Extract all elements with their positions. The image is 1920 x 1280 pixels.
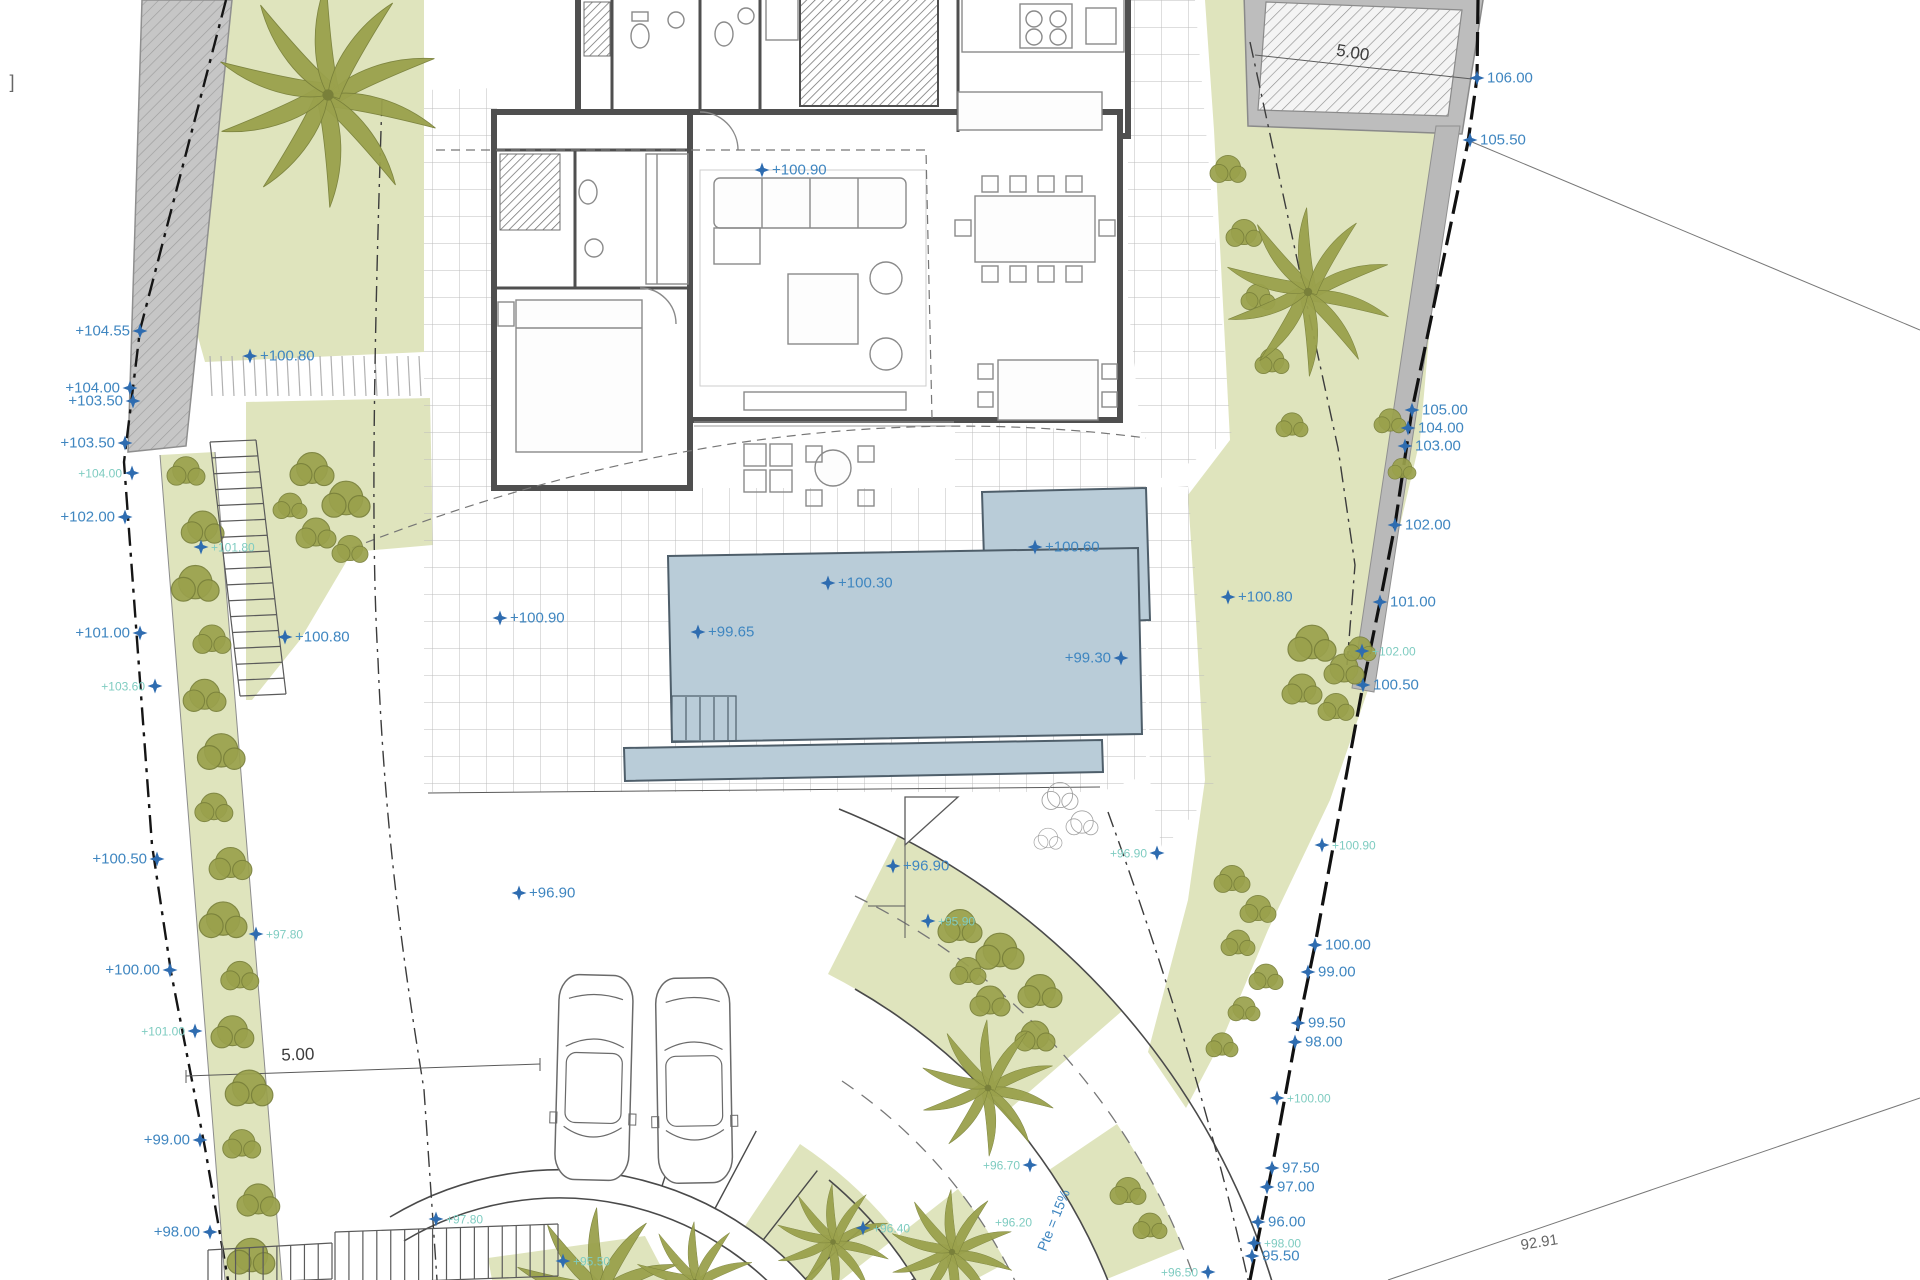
spot-elevation: +97.80	[249, 927, 304, 942]
spot-elevation-value: +96.90	[903, 858, 949, 875]
spot-elevation-value: +99.00	[144, 1132, 190, 1149]
spot-elevation-value: +96.40	[873, 1222, 910, 1236]
survey-diamond-icon	[1301, 965, 1316, 980]
spot-elevation: +96.40	[856, 1221, 911, 1236]
spot-elevation-value: +100.00	[105, 962, 160, 979]
spot-elevation-value: +96.20	[995, 1216, 1032, 1230]
spot-elevation-value: +98.00	[154, 1224, 200, 1241]
spot-elevation: +95.50	[556, 1254, 611, 1269]
spot-elevation-value: +100.80	[260, 348, 315, 365]
spot-elevation-value: +98.00	[1264, 1237, 1301, 1251]
spot-elevation-value: 106.00	[1487, 70, 1533, 87]
garden-top-left	[196, 0, 424, 362]
spot-elevation: +100.90	[1315, 838, 1377, 853]
spot-elevation-value: +103.50	[60, 435, 115, 452]
car-2	[649, 977, 739, 1183]
survey-diamond-icon	[203, 1225, 218, 1240]
spot-elevation-value: 96.00	[1268, 1214, 1306, 1231]
spot-elevation-value: +96.50	[1161, 1266, 1198, 1280]
pergola-stripes	[210, 356, 421, 396]
spot-elevation-value: 100.00	[1325, 937, 1371, 954]
dimension-label: Pte = 15%	[1034, 1187, 1073, 1253]
spot-elevation: +102.00	[60, 509, 132, 526]
spot-elevation: 98.00	[1288, 1034, 1343, 1051]
spot-elevation: +96.90	[512, 885, 576, 902]
spot-elevation: +98.00	[1247, 1236, 1302, 1251]
pergola-stripe	[342, 356, 344, 396]
pergola-stripe	[320, 356, 322, 396]
survey-diamond-icon	[1308, 938, 1323, 953]
survey-diamond-icon	[150, 852, 165, 867]
spot-elevation-value: +100.50	[92, 851, 147, 868]
survey-diamond-icon	[1315, 838, 1330, 853]
spot-elevation-value: +101.00	[141, 1025, 185, 1039]
spot-elevation-value: +100.80	[295, 629, 350, 646]
spot-elevation-value: 97.50	[1282, 1160, 1320, 1177]
spot-elevation-value: +99.30	[1065, 650, 1111, 667]
spot-elevation: +95.90	[921, 914, 976, 929]
spot-elevation-value: +100.60	[1045, 539, 1100, 556]
spot-elevation-value: +100.00	[1287, 1092, 1331, 1106]
survey-diamond-icon	[512, 886, 527, 901]
spot-elevation-value: +102.00	[1372, 645, 1416, 659]
spot-elevation-value: +101.80	[211, 541, 255, 555]
spot-elevation: +96.50	[1161, 1265, 1216, 1280]
survey-diamond-icon	[1260, 1180, 1275, 1195]
spot-elevation-value: 101.00	[1390, 594, 1436, 611]
villa	[494, 0, 1128, 488]
spot-elevation-value: +97.80	[266, 928, 303, 942]
spot-elevation: +103.60	[101, 679, 162, 694]
pergola-stripe	[408, 356, 410, 396]
spot-elevation-value: +100.90	[510, 610, 565, 627]
spot-elevation-value: 105.00	[1422, 402, 1468, 419]
spot-elevation-value: +100.90	[772, 162, 827, 179]
dimension-label: 5.00	[281, 1044, 315, 1064]
spot-elevation-value: +100.90	[1332, 839, 1376, 853]
dimension-label: 92.91	[1519, 1231, 1559, 1254]
spot-elevation: +99.00	[144, 1132, 208, 1149]
survey-diamond-icon	[188, 1024, 203, 1039]
spot-elevation-value: 99.00	[1318, 964, 1356, 981]
pergola-stripe	[386, 356, 388, 396]
spot-elevation-value: +104.55	[75, 323, 130, 340]
spot-elevation: +96.20	[995, 1216, 1032, 1230]
spot-elevation-value: +100.30	[838, 575, 893, 592]
spot-elevation: 100.00	[1308, 937, 1371, 954]
spot-elevation: +97.80	[429, 1212, 484, 1227]
spot-elevation-value: +96.70	[983, 1159, 1020, 1173]
drainage-triangle	[905, 797, 958, 845]
pergola-stripe	[254, 356, 256, 396]
site-plan-sheet: +100.90+100.80+100.80+100.90+100.60+100.…	[0, 0, 1920, 1280]
spot-elevation-value: 99.50	[1308, 1015, 1346, 1032]
spot-elevation: 105.50	[1463, 132, 1526, 149]
survey-diamond-icon	[1201, 1265, 1216, 1280]
survey-diamond-icon	[148, 679, 163, 694]
spot-elevation-value: +96.90	[529, 885, 575, 902]
pergola-stripe	[364, 356, 366, 396]
spot-elevation-value: +101.00	[75, 625, 130, 642]
pergola-stripe	[221, 356, 223, 396]
pergola-stripe	[397, 356, 399, 396]
spot-elevation: 97.00	[1260, 1179, 1315, 1196]
spot-elevation-value: 98.00	[1305, 1034, 1343, 1051]
spot-elevation-value: +104.00	[78, 467, 122, 481]
car-1	[548, 974, 639, 1181]
dry-shrub	[1066, 811, 1098, 835]
survey-diamond-icon	[1265, 1161, 1280, 1176]
survey-diamond-icon	[118, 510, 133, 525]
survey-diamond-icon	[429, 1212, 444, 1227]
survey-diamond-icon	[133, 626, 148, 641]
pergola-stripe	[210, 356, 212, 396]
spot-elevation: +104.00	[78, 466, 139, 481]
pergola-stripe	[353, 356, 355, 396]
dimension-label: ]	[9, 72, 14, 92]
spot-elevation-value: 103.00	[1415, 438, 1461, 455]
survey-diamond-icon	[163, 963, 178, 978]
spot-elevation-value: 105.50	[1480, 132, 1526, 149]
pergola-stripe	[331, 356, 333, 396]
pergola-stripe	[232, 356, 234, 396]
survey-diamond-icon	[1291, 1016, 1306, 1031]
spot-elevation-value: 97.00	[1277, 1179, 1315, 1196]
spot-elevation: +100.00	[1270, 1091, 1332, 1106]
spot-elevation-value: +103.60	[101, 680, 145, 694]
dry-shrub	[1034, 828, 1062, 849]
spot-elevation-value: +99.65	[708, 624, 754, 641]
spot-elevation-value: 100.50	[1373, 677, 1419, 694]
spot-elevation: +98.00	[154, 1224, 218, 1241]
spot-elevation-value: +100.80	[1238, 589, 1293, 606]
survey-diamond-icon	[1023, 1158, 1038, 1173]
survey-diamond-icon	[1463, 133, 1478, 148]
spot-elevation: +96.90	[1110, 846, 1165, 861]
spot-elevation-value: +95.90	[938, 915, 975, 929]
spot-elevation-value: 102.00	[1405, 517, 1451, 534]
spot-elevation-value: +102.00	[60, 509, 115, 526]
spot-elevation: +101.00	[141, 1024, 202, 1039]
spot-elevation: 97.50	[1265, 1160, 1320, 1177]
spot-elevation-value: +96.90	[1110, 847, 1147, 861]
pergola-stripe	[419, 356, 421, 396]
pergola-stripe	[243, 356, 245, 396]
survey-diamond-icon	[125, 466, 140, 481]
spot-elevation: +96.70	[983, 1158, 1038, 1173]
shrub	[1249, 964, 1283, 990]
site-plan-drawing: +100.90+100.80+100.80+100.90+100.60+100.…	[0, 0, 1920, 1280]
spot-elevation: 106.00	[1470, 70, 1533, 87]
survey-diamond-icon	[1288, 1035, 1303, 1050]
spot-elevation-value: +103.50	[68, 393, 123, 410]
spot-elevation-value: 104.00	[1418, 420, 1464, 437]
spot-elevation-value: +95.50	[573, 1255, 610, 1269]
spot-elevation-value: +97.80	[446, 1213, 483, 1227]
spot-elevation: +100.00	[105, 962, 177, 979]
spot-elevation: +103.50	[60, 435, 132, 452]
